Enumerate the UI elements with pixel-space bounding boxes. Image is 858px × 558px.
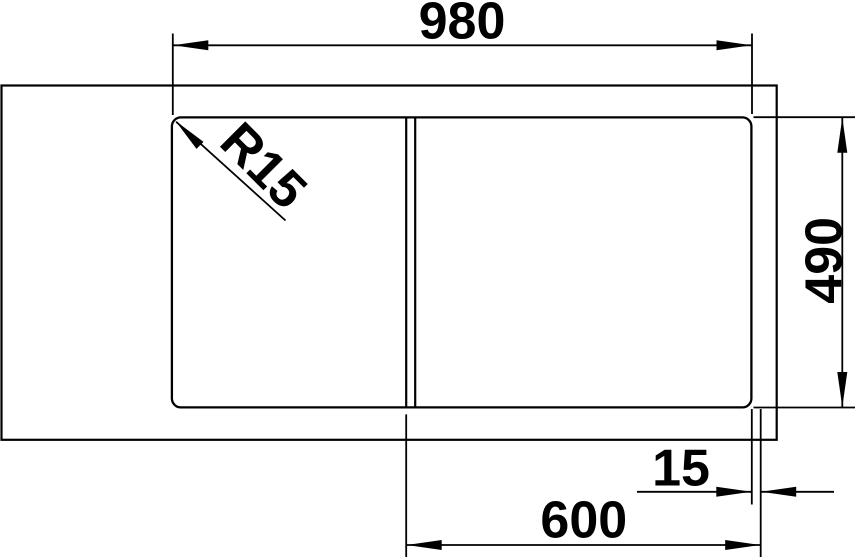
svg-text:15: 15 [652, 440, 710, 498]
svg-text:600: 600 [540, 492, 627, 550]
svg-text:R15: R15 [209, 112, 317, 220]
svg-text:980: 980 [419, 0, 506, 51]
svg-text:490: 490 [796, 217, 854, 304]
